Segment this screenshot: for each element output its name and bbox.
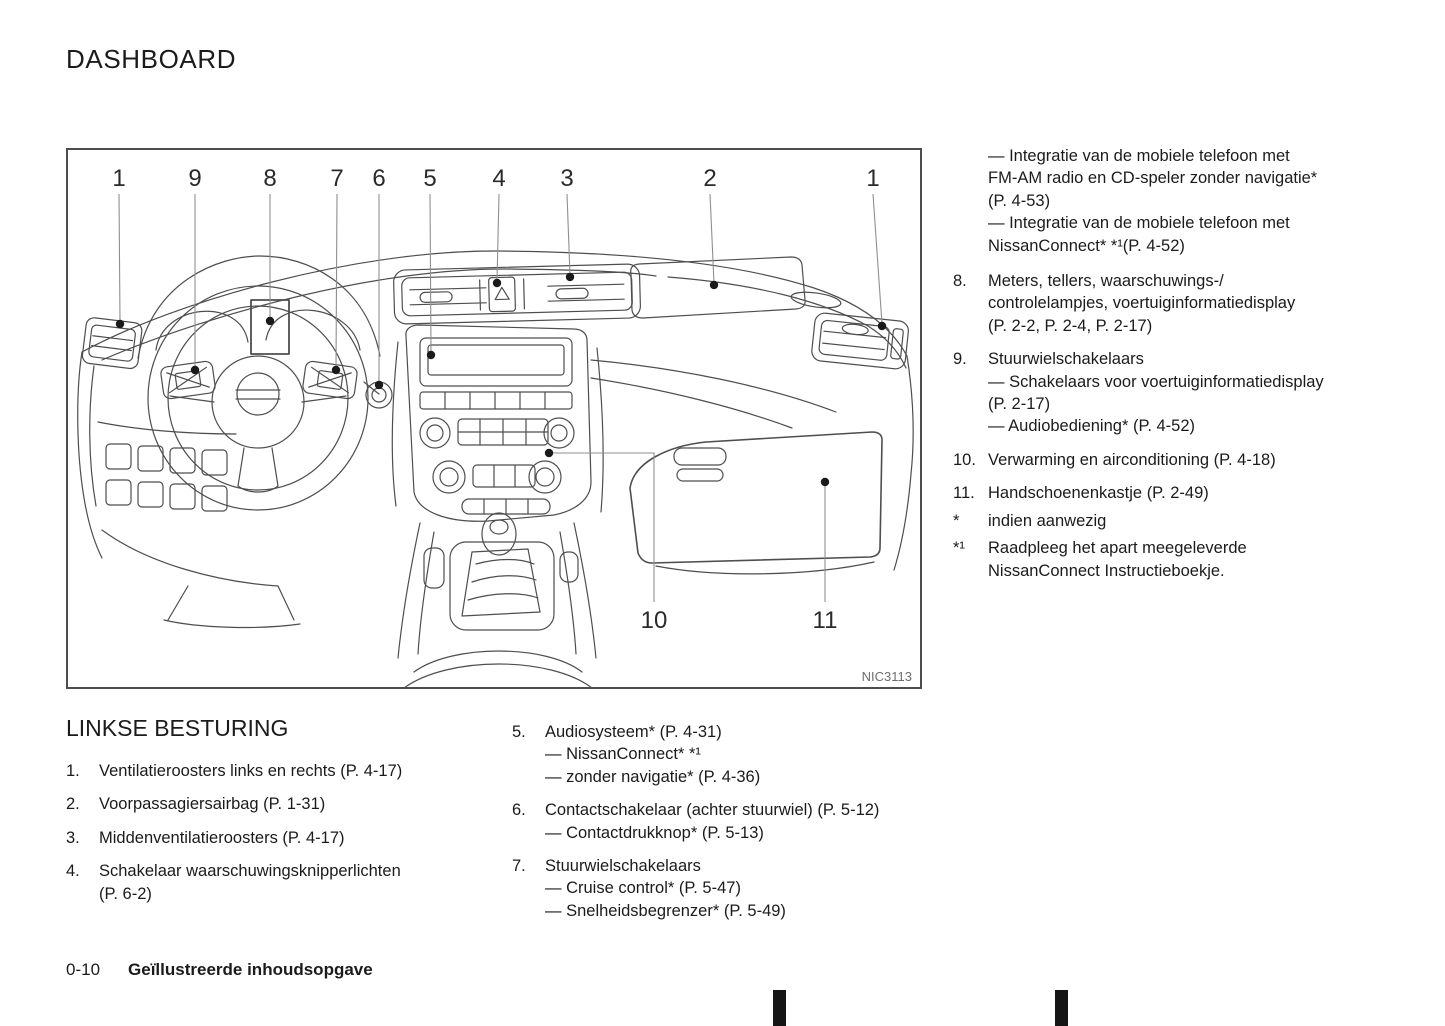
item-number: 4. <box>66 860 99 905</box>
item-line: Verwarming en airconditioning (P. 4-18) <box>988 449 1413 471</box>
item-number: 8. <box>953 270 988 337</box>
mid-section: 5. Audiosysteem* (P. 4-31) — NissanConne… <box>512 721 962 933</box>
item-line: — zonder navigatie* (P. 4-36) <box>545 766 962 788</box>
item-number: * <box>953 510 988 532</box>
callout-label-1-right: 1 <box>866 165 879 192</box>
leader-lines <box>119 194 882 602</box>
list-item-8: 8. Meters, tellers, waarschuwings-/ cont… <box>953 270 1413 337</box>
item-line: — Integratie van de mobiele telefoon met <box>988 212 1413 234</box>
item-line: Stuurwielschakelaars <box>545 855 962 877</box>
item-line: — Cruise control* (P. 5-47) <box>545 877 962 899</box>
callout-label-2: 2 <box>703 165 716 192</box>
print-mark-bar <box>1055 990 1068 1026</box>
list-item-7: 7. Stuurwielschakelaars — Cruise control… <box>512 855 962 922</box>
item-line: Middenventilatieroosters (P. 4-17) <box>99 827 506 849</box>
list-item-3: 3. Middenventilatieroosters (P. 4-17) <box>66 827 506 849</box>
item-number: 6. <box>512 799 545 844</box>
item-line: — NissanConnect* *¹ <box>545 743 962 765</box>
item-number: 11. <box>953 482 988 504</box>
item-line: (P. 2-17) <box>988 393 1413 415</box>
manual-page: DASHBOARD <box>0 0 1445 1026</box>
item-line: (P. 2-2, P. 2-4, P. 2-17) <box>988 315 1413 337</box>
item-number: *¹ <box>953 537 988 582</box>
dashboard-diagram: 1 9 8 7 6 5 4 3 2 1 10 11 NIC3113 <box>68 150 920 687</box>
list-item-11: 11. Handschoenenkastje (P. 2-49) <box>953 482 1413 504</box>
item-line: Meters, tellers, waarschuwings-/ <box>988 270 1413 292</box>
list-item-4: 4. Schakelaar waarschuwingsknipperlichte… <box>66 860 506 905</box>
left-section: LINKSE BESTURING 1. Ventilatieroosters l… <box>66 714 506 916</box>
list-item-2: 2. Voorpassagiersairbag (P. 1-31) <box>66 793 506 815</box>
callout-label-4: 4 <box>492 165 505 192</box>
callout-label-3: 3 <box>560 165 573 192</box>
item-line: controlelampjes, voertuiginformatiedispl… <box>988 292 1413 314</box>
item-number: 1. <box>66 760 99 782</box>
footer-section-title: Geïllustreerde inhoudsopgave <box>128 960 373 979</box>
item-line: (P. 4-53) <box>988 190 1413 212</box>
callout-label-1-left: 1 <box>112 165 125 192</box>
list-item-6: 6. Contactschakelaar (achter stuurwiel) … <box>512 799 962 844</box>
footer-page-number: 0-10 <box>66 960 100 979</box>
callout-dots <box>116 273 886 486</box>
print-mark-bar <box>773 990 786 1026</box>
item-line: Schakelaar waarschuwingsknipperlichten <box>99 860 506 882</box>
item-number: 9. <box>953 348 988 438</box>
item-number: 3. <box>66 827 99 849</box>
item-line: — Snelheidsbegrenzer* (P. 5-49) <box>545 900 962 922</box>
item-line: Voorpassagiersairbag (P. 1-31) <box>99 793 506 815</box>
item-line: NissanConnect Instructieboekje. <box>988 560 1413 582</box>
callout-label-6: 6 <box>372 165 385 192</box>
item-number: 7. <box>512 855 545 922</box>
footnote-asterisk-1: *¹ Raadpleeg het apart meegeleverde Niss… <box>953 537 1413 582</box>
item-line: NissanConnect* *¹(P. 4-52) <box>988 235 1413 257</box>
figure-code-label: NIC3113 <box>862 669 912 684</box>
footnote-asterisk: * indien aanwezig <box>953 510 1413 532</box>
list-item-9: 9. Stuurwielschakelaars — Schakelaars vo… <box>953 348 1413 438</box>
dashboard-figure: 1 9 8 7 6 5 4 3 2 1 10 11 NIC3113 <box>66 148 922 689</box>
callout-label-7: 7 <box>330 165 343 192</box>
dashboard-line-art <box>78 251 913 687</box>
continuation-note: — Integratie van de mobiele telefoon met… <box>988 145 1413 257</box>
page-title: DASHBOARD <box>66 44 236 75</box>
item-line: Audiosysteem* (P. 4-31) <box>545 721 962 743</box>
item-line: Handschoenenkastje (P. 2-49) <box>988 482 1413 504</box>
list-item-10: 10. Verwarming en airconditioning (P. 4-… <box>953 449 1413 471</box>
callout-label-8: 8 <box>263 165 276 192</box>
list-item-1: 1. Ventilatieroosters links en rechts (P… <box>66 760 506 782</box>
list-item-5: 5. Audiosysteem* (P. 4-31) — NissanConne… <box>512 721 962 788</box>
item-line: Ventilatieroosters links en rechts (P. 4… <box>99 760 506 782</box>
item-number: 5. <box>512 721 545 788</box>
item-line: — Contactdrukknop* (P. 5-13) <box>545 822 962 844</box>
page-footer: 0-10Geïllustreerde inhoudsopgave <box>66 960 373 980</box>
right-column: — Integratie van de mobiele telefoon met… <box>953 145 1413 587</box>
item-number: 10. <box>953 449 988 471</box>
item-line: FM-AM radio en CD-speler zonder navigati… <box>988 167 1413 189</box>
callout-label-11: 11 <box>813 607 838 634</box>
item-line: — Integratie van de mobiele telefoon met <box>988 145 1413 167</box>
callout-label-9: 9 <box>188 165 201 192</box>
item-line: — Schakelaars voor voertuiginformatiedis… <box>988 371 1413 393</box>
item-line: Stuurwielschakelaars <box>988 348 1413 370</box>
item-line: Raadpleeg het apart meegeleverde <box>988 537 1413 559</box>
callout-label-5: 5 <box>423 165 436 192</box>
item-line: (P. 6-2) <box>99 883 506 905</box>
item-number: 2. <box>66 793 99 815</box>
item-line: — Audiobediening* (P. 4-52) <box>988 415 1413 437</box>
item-line: Contactschakelaar (achter stuurwiel) (P.… <box>545 799 962 821</box>
left-section-heading: LINKSE BESTURING <box>66 714 506 742</box>
callout-label-10: 10 <box>641 607 668 634</box>
item-line: indien aanwezig <box>988 510 1413 532</box>
